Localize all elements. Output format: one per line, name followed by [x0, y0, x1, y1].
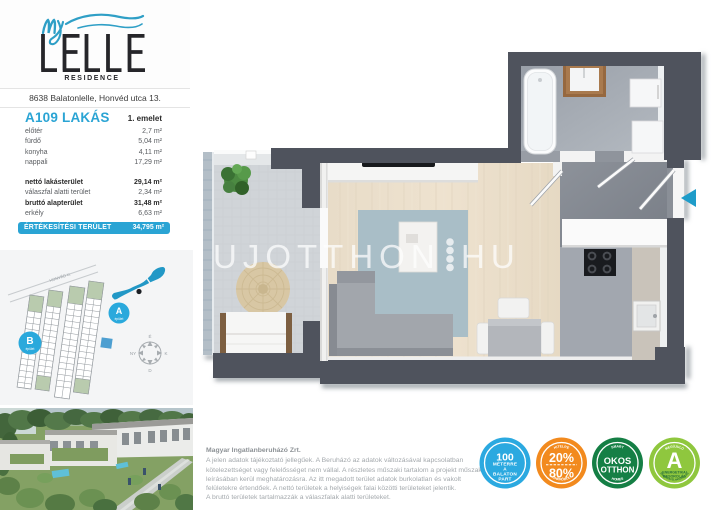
svg-text:UJOTTHON: UJOTTHON [213, 238, 441, 275]
svg-text:HU: HU [461, 238, 521, 275]
